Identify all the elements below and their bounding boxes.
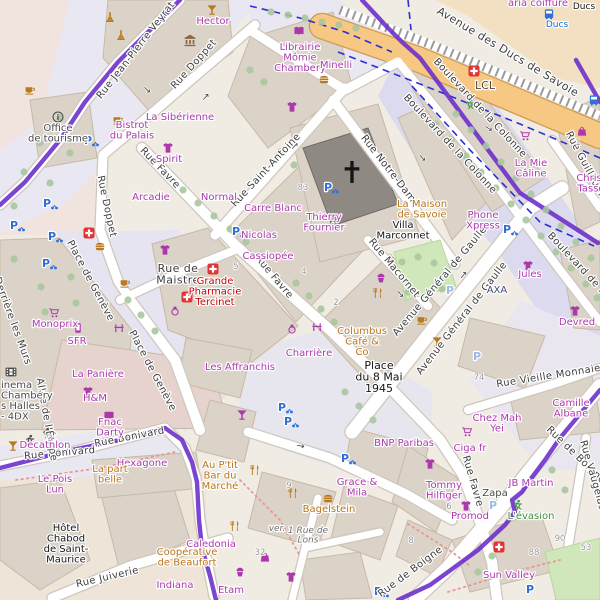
- poi-label: Normal: [201, 192, 237, 203]
- parking-icon-letter: P: [43, 197, 51, 210]
- tree: [355, 402, 362, 409]
- cross-icon: [494, 542, 505, 553]
- poi-icon-burger: [320, 76, 329, 83]
- poi-label: Ducs: [573, 2, 596, 12]
- tree: [572, 238, 579, 245]
- poi-label: 8: [408, 536, 413, 546]
- poi-icon-cross: [208, 264, 219, 275]
- poi-label: LCL: [475, 79, 496, 92]
- tree: [587, 254, 594, 261]
- tree: [246, 66, 253, 73]
- poi-label: Coopérativede Beaufort: [157, 546, 218, 569]
- tree: [37, 283, 44, 290]
- poi-label: 53: [581, 543, 592, 553]
- tree: [537, 232, 544, 239]
- tree: [430, 259, 437, 266]
- poi-label: Les Affranchis: [205, 362, 275, 373]
- parking-icon-letter: P: [473, 350, 481, 363]
- poi-label: 3: [47, 434, 52, 444]
- building: [300, 552, 372, 600]
- tree: [67, 273, 74, 280]
- poi-icon-book: [294, 27, 303, 35]
- parking-icon-letter: P: [10, 219, 18, 232]
- film-icon: [6, 368, 17, 377]
- poi-icon-pk: P: [446, 284, 454, 297]
- parking-icon-letter: P: [48, 230, 56, 243]
- cross-icon: [469, 66, 480, 77]
- poi-label: 4: [301, 267, 306, 277]
- poi-label: aria coiffure: [508, 0, 568, 9]
- tree: [305, 292, 312, 299]
- tree: [474, 568, 481, 575]
- poi-label: Monoprix: [32, 319, 78, 330]
- tree: [497, 158, 504, 165]
- tree: [260, 78, 267, 85]
- tree: [414, 253, 421, 260]
- tree: [467, 126, 474, 133]
- poi-label: L'évasion: [508, 510, 555, 522]
- poi-label: La Panière: [72, 368, 124, 380]
- poi-label: 5: [233, 262, 238, 272]
- poi-label: Arcadie: [132, 192, 170, 203]
- tree: [20, 168, 27, 175]
- parking-icon-letter: P: [489, 499, 497, 512]
- tree: [137, 311, 144, 318]
- poi-label: AXA: [487, 285, 508, 296]
- tree: [124, 296, 131, 303]
- poi-icon-cross: [84, 228, 95, 239]
- poi-label: Decathlon: [20, 440, 71, 451]
- poi-label: Minelli: [320, 60, 352, 71]
- tree: [179, 186, 186, 193]
- tree: [284, 11, 291, 18]
- poi-label: BNP Paribas: [374, 438, 434, 449]
- bus-icon: [545, 9, 553, 19]
- poi-label: ThierryFournier: [303, 212, 345, 234]
- cross-icon: [208, 264, 219, 275]
- tree: [317, 305, 324, 312]
- burger-icon: [320, 76, 329, 83]
- poi-label: 90: [555, 534, 566, 544]
- tree: [557, 222, 564, 229]
- poi-label: TommyHilfiger: [425, 480, 463, 502]
- poi-label: Bagelstein: [303, 504, 356, 515]
- poi-label: Promod: [451, 511, 489, 522]
- poi-icon-pk: P: [526, 583, 534, 596]
- poi-icon-burger: [96, 243, 105, 250]
- street-label: Rue deMaistre: [156, 262, 199, 287]
- poi-label: 9: [286, 481, 291, 491]
- tree: [46, 179, 53, 186]
- tree: [151, 327, 158, 334]
- map-canvas[interactable]: PPPPPPPPPPPPPPPP→→→→→→→→ Rue Jean-Pierre…: [0, 0, 600, 600]
- poi-label: H&M: [83, 393, 107, 404]
- tree: [318, 18, 325, 25]
- poi-label: 74: [474, 373, 485, 383]
- poi-icon-cross: [469, 66, 480, 77]
- tree: [41, 308, 48, 315]
- poi-icon-bus: [545, 9, 553, 19]
- poi-label: 1: [575, 138, 580, 148]
- tree: [352, 24, 359, 31]
- parking-icon-letter: P: [284, 415, 292, 428]
- cross-icon: [84, 228, 95, 239]
- tree: [542, 206, 549, 213]
- poi-label: 88: [529, 548, 540, 558]
- poi-label: La Sibérienne: [146, 111, 214, 123]
- poi-label: La MieCâline: [515, 158, 547, 180]
- poi-label: Ciga fr: [453, 443, 487, 454]
- poi-label: Etam: [218, 585, 244, 596]
- poi-label: ver.: [269, 524, 286, 534]
- parking-icon-letter: P: [324, 181, 332, 194]
- poi-label: ChristTasse: [576, 173, 600, 195]
- poi-label: Jules: [517, 269, 541, 280]
- poi-label: Devred: [559, 317, 595, 328]
- tree: [292, 279, 299, 286]
- tree: [488, 552, 495, 559]
- tree: [548, 466, 555, 473]
- poi-label: SFR: [67, 336, 86, 347]
- book-icon: [294, 27, 303, 35]
- poi-label: Cassiopée: [242, 250, 293, 262]
- poi-label: Zapa: [482, 488, 507, 499]
- parking-icon-letter: P: [503, 223, 511, 236]
- tree: [330, 318, 337, 325]
- tree: [398, 258, 405, 265]
- bus-icon: [590, 95, 598, 105]
- poi-label: Charrière: [286, 347, 332, 359]
- poi-label: Bistrotdu Palais: [110, 120, 154, 142]
- tree: [210, 212, 217, 219]
- poi-label: 6: [446, 502, 451, 512]
- tree: [10, 202, 17, 209]
- poi-label: Carre Blanc: [244, 203, 302, 214]
- poi-label: 2: [333, 298, 338, 308]
- poi-label: PhoneXpress: [466, 210, 500, 232]
- poi-label: La Maisonde Savoie: [397, 199, 447, 221]
- tree: [369, 416, 376, 423]
- tree: [72, 299, 79, 306]
- poi-label: CamilleAlbane: [552, 398, 589, 420]
- poi-icon-film: [6, 368, 17, 377]
- tree: [335, 21, 342, 28]
- tree: [10, 255, 17, 262]
- tree: [341, 388, 348, 395]
- poi-label: Ducs: [546, 20, 569, 30]
- burger-icon: [96, 243, 105, 250]
- tree: [561, 486, 568, 493]
- poi-icon-bus: [590, 95, 598, 105]
- poi-icon-pk: P: [473, 350, 481, 363]
- tree: [522, 216, 529, 223]
- parking-icon-letter: P: [446, 284, 454, 297]
- map-viewport[interactable]: Street map of Chambéry city centre (Open…: [0, 0, 600, 600]
- tree: [301, 14, 308, 21]
- poi-label: 83: [298, 183, 309, 193]
- parking-icon-letter: P: [341, 452, 349, 465]
- tree: [290, 161, 297, 168]
- poi-label: Hector: [196, 16, 230, 27]
- poi-label: Sun Valley: [483, 570, 535, 581]
- poi-label: 32: [255, 548, 266, 558]
- tree: [267, 8, 274, 15]
- burger-icon: [324, 495, 333, 502]
- tree: [527, 190, 534, 197]
- parking-icon-letter: P: [42, 257, 50, 270]
- tree: [507, 200, 514, 207]
- poi-label: FnacDarty: [96, 417, 124, 439]
- poi-icon-burger: [324, 495, 333, 502]
- tree: [66, 149, 73, 156]
- poi-icon-pk: P: [489, 499, 497, 512]
- parking-icon-letter: P: [232, 225, 240, 238]
- poi-label: Spirit: [156, 154, 182, 165]
- tree: [452, 110, 459, 117]
- poi-label: Indiana: [156, 580, 193, 591]
- poi-icon-cross: [494, 542, 505, 553]
- poi-label: Nicolas: [241, 230, 277, 241]
- parking-icon-letter: P: [278, 401, 286, 414]
- tree: [482, 142, 489, 149]
- parking-icon-letter: P: [526, 583, 534, 596]
- poi-label: JB Martin: [508, 478, 554, 489]
- poi-label: Au P'titBar duMarché: [202, 460, 239, 492]
